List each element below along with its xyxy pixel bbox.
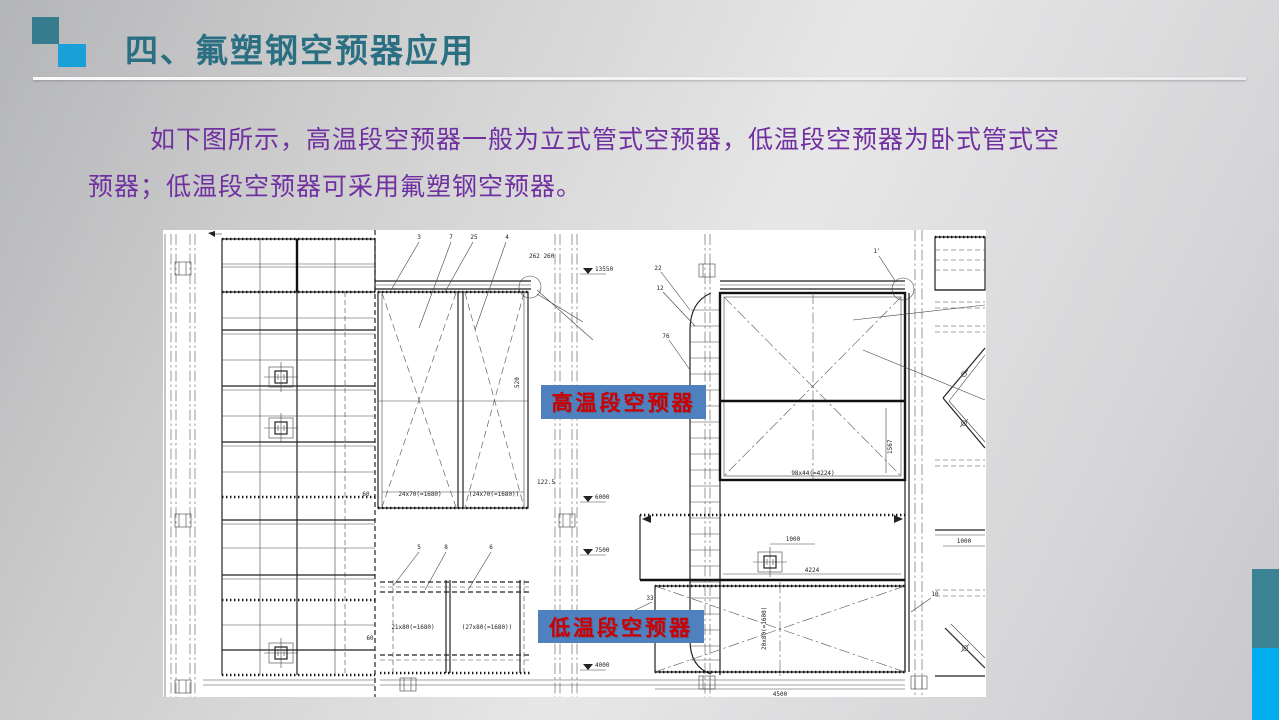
balloon-5: 5: [417, 544, 421, 551]
balloon-8: 8: [444, 544, 448, 551]
page-title: 四、氟塑钢空预器应用: [125, 24, 1125, 72]
dim-1000-right: 1000: [957, 538, 972, 545]
elevation-4000: 4000: [595, 662, 610, 669]
dim-520: 520: [514, 377, 521, 388]
dim-4224: 4224: [805, 567, 820, 574]
dim-tube-c: 21x80(=1680): [391, 624, 434, 631]
dim-tube-d: (27x80(=1680)): [462, 624, 513, 631]
dim-1000-band: 1000: [786, 536, 801, 543]
elevation-7500: 7500: [595, 547, 610, 554]
elevation-13550: 13550: [595, 266, 613, 273]
body-text-line1: 如下图所示，高温段空预器一般为立式管式空预器，低温段空预器为卧式管式空: [150, 120, 1060, 156]
accent-square-dark: [32, 17, 59, 44]
right-edge-bar-teal: [1252, 569, 1279, 648]
dim-4500: 4500: [773, 691, 788, 697]
slide: 四、氟塑钢空预器应用 如下图所示，高温段空预器一般为立式管式空预器，低温段空预器…: [0, 0, 1279, 720]
dim-vlow: 20x80(=1600): [761, 607, 768, 650]
dim-60: 60: [362, 491, 370, 498]
balloon-22: 22: [654, 265, 662, 272]
accent-square-light: [58, 44, 86, 67]
balloon-7: 7: [449, 234, 453, 241]
title-divider: [33, 77, 1246, 80]
dim-1567: 1567: [887, 439, 894, 454]
dim-60b: 60: [366, 635, 374, 642]
elevation-6000: 6000: [595, 494, 610, 501]
dim-262-260: 262 260: [529, 253, 555, 260]
dim-square-tubes: 98x44(=4224): [791, 470, 834, 477]
body-text-line2: 预器；低温段空预器可采用氟塑钢空预器。: [88, 167, 582, 203]
label-low-temp-air-preheater: 低温段空预器: [538, 610, 704, 643]
balloon-33: 33: [646, 595, 654, 602]
balloon-6: 6: [489, 544, 493, 551]
balloon-3: 3: [417, 234, 421, 241]
label-high-temp-air-preheater: 高温段空预器: [541, 385, 706, 419]
dim-122-5: 122.5: [537, 479, 555, 486]
right-edge-bar-blue: [1252, 648, 1279, 720]
dim-tube-a: 24x70(=1680): [398, 491, 441, 498]
balloon-4: 4: [505, 234, 509, 241]
dim-tube-b: (24x70(=1680)): [469, 491, 520, 498]
balloon-10: 10: [931, 591, 939, 598]
balloon-76: 76: [662, 333, 670, 340]
balloon-12: 12: [656, 285, 664, 292]
balloon-1-prime: 1': [873, 248, 880, 255]
balloon-25: 25: [470, 234, 478, 241]
